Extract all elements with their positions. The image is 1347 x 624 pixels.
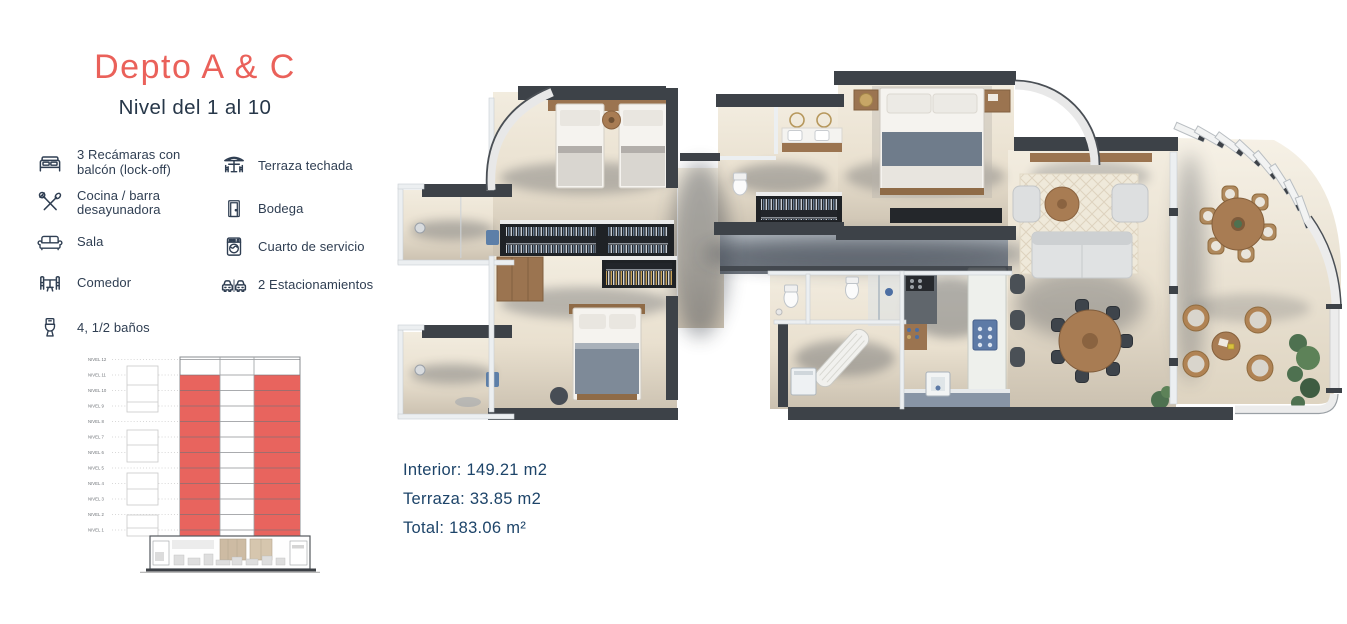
feature-label: Terraza techada (258, 159, 353, 174)
stool (486, 230, 499, 245)
feature-label: Sala (77, 235, 103, 250)
kitchen-icon (30, 189, 70, 217)
bed-2 (569, 304, 645, 400)
feature-list: 3 Recámaras con balcón (lock-off) Cocina… (30, 148, 390, 343)
level-label: NIVEL 3 (88, 497, 104, 502)
floorplan-sheet: Depto A & C Nivel del 1 al 10 3 Recámara… (0, 0, 1347, 624)
highlighted-unit-column-left (180, 375, 220, 536)
area-total: Total: 183.06 m² (403, 519, 547, 538)
building-elevation-diagram: NIVEL 12 NIVEL 11 NIVEL 10 NIVEL 9 NIVEL… (82, 352, 322, 587)
sofa-icon (30, 229, 70, 255)
side-wall (1330, 308, 1339, 392)
twin-bed-2 (619, 104, 667, 188)
lower-counter (903, 393, 1010, 409)
level-label: NIVEL 10 (88, 388, 107, 393)
feature-column-2: Terraza techada Bodega Cuarto de servici… (218, 148, 390, 343)
feature-label: 3 Recámaras con balcón (lock-off) (77, 148, 218, 178)
level-label: NIVEL 8 (88, 419, 104, 424)
bar-stool (1010, 274, 1025, 294)
dining-icon (30, 269, 70, 297)
level-label: NIVEL 5 (88, 466, 104, 471)
shower-fixture (415, 365, 425, 375)
toilet-icon (30, 313, 70, 343)
level-label: NIVEL 9 (88, 404, 104, 409)
area-terrace: Terraza: 33.85 m2 (403, 490, 547, 509)
level-label: NIVEL 2 (88, 512, 104, 517)
master-bed (880, 88, 984, 195)
feature-label: Cocina / barra desayunadora (77, 189, 218, 219)
sink (815, 131, 829, 141)
feature-label: Cuarto de servicio (258, 240, 365, 255)
side-balcony-boxes (127, 366, 158, 536)
closet-2 (600, 256, 677, 288)
feature-bathrooms: 4, 1/2 baños (30, 313, 218, 343)
feature-dining: Comedor (30, 269, 218, 297)
bar-stool (1010, 347, 1025, 367)
pouf (550, 387, 568, 405)
highlighted-unit-column-right (254, 375, 300, 536)
floorplan-render (390, 58, 1345, 433)
cars-icon (218, 271, 250, 299)
area-figures: Interior: 149.21 m2 Terraza: 33.85 m2 To… (403, 461, 547, 548)
washer-icon (218, 232, 250, 262)
level-label: NIVEL 12 (88, 357, 107, 362)
armchair (1013, 186, 1040, 222)
bar-stool (1010, 310, 1025, 330)
page-subtitle: Nivel del 1 al 10 (40, 96, 350, 120)
feature-label: 4, 1/2 baños (77, 321, 150, 336)
walk-in-closet (756, 192, 842, 222)
feature-label: Bodega (258, 202, 303, 217)
shower (868, 274, 902, 326)
area-interior: Interior: 149.21 m2 (403, 461, 547, 480)
level-label: NIVEL 1 (88, 528, 104, 533)
level-label: NIVEL 4 (88, 481, 104, 486)
door-icon (218, 194, 250, 224)
feature-terrace: Terraza techada (218, 152, 390, 180)
bed-icon (30, 149, 70, 177)
feature-living: Sala (30, 229, 218, 255)
feature-bedrooms: 3 Recámaras con balcón (lock-off) (30, 148, 218, 178)
terrace-icon (218, 152, 250, 180)
armchair (1112, 184, 1148, 222)
level-label: NIVEL 11 (88, 373, 107, 378)
level-labels: NIVEL 12 NIVEL 11 NIVEL 10 NIVEL 9 NIVEL… (88, 357, 107, 532)
feature-label: 2 Estacionamientos (258, 278, 373, 293)
feature-column-1: 3 Recámaras con balcón (lock-off) Cocina… (30, 148, 218, 343)
feature-parking: 2 Estacionamientos (218, 271, 390, 299)
ground-floor-section (140, 536, 320, 573)
bath-mat (455, 397, 481, 407)
feature-kitchen: Cocina / barra desayunadora (30, 189, 218, 219)
level-label: NIVEL 7 (88, 435, 104, 440)
feature-storage: Bodega (218, 194, 390, 224)
shower-fixture (415, 223, 425, 233)
dresser (890, 208, 1002, 223)
closet-1 (500, 220, 674, 256)
sink (788, 131, 802, 141)
stove (973, 320, 997, 350)
page-title: Depto A & C (40, 48, 350, 87)
level-label: NIVEL 6 (88, 450, 104, 455)
twin-bed-1 (556, 104, 604, 188)
feature-service-room: Cuarto de servicio (218, 232, 390, 262)
feature-label: Comedor (77, 276, 131, 291)
